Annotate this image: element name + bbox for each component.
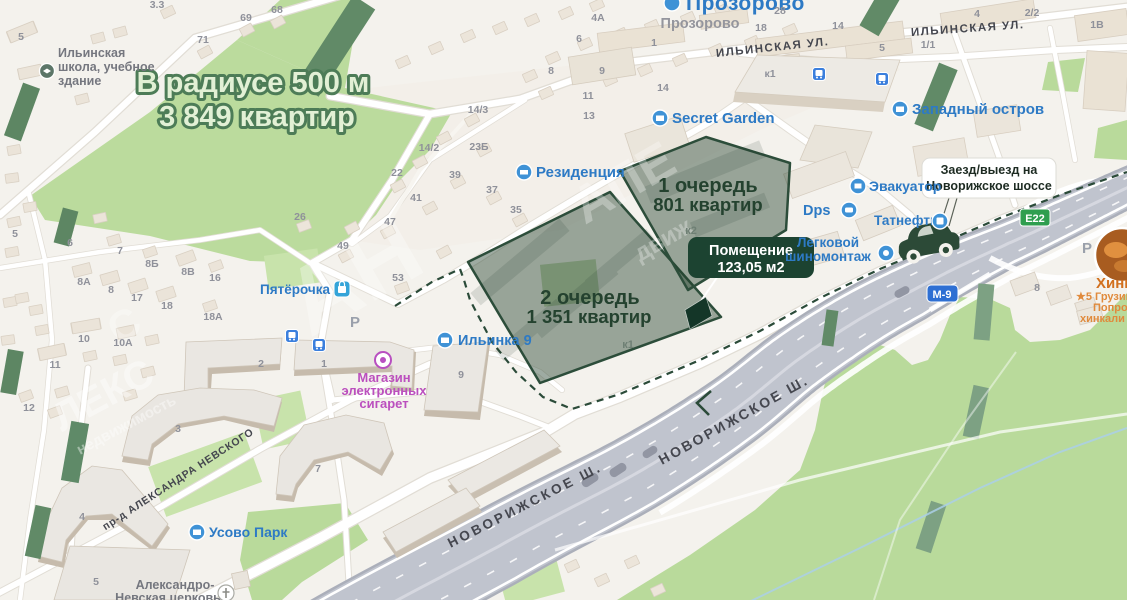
- svg-text:Dps: Dps: [803, 203, 830, 219]
- svg-text:Легковой: Легковой: [797, 235, 859, 250]
- svg-text:5: 5: [93, 576, 99, 588]
- svg-text:12: 12: [23, 402, 35, 414]
- svg-text:к2: к2: [685, 225, 697, 237]
- svg-text:11: 11: [582, 90, 593, 102]
- svg-text:26: 26: [294, 211, 306, 223]
- svg-text:68: 68: [271, 4, 283, 16]
- svg-text:5: 5: [18, 31, 24, 43]
- svg-text:9: 9: [458, 369, 464, 381]
- svg-text:Secret Garden: Secret Garden: [672, 110, 775, 127]
- svg-text:Татнефть: Татнефть: [874, 213, 938, 228]
- svg-text:6: 6: [67, 237, 73, 249]
- svg-text:53: 53: [392, 272, 404, 284]
- svg-text:9: 9: [599, 65, 605, 77]
- svg-text:Александро-: Александро-: [136, 578, 215, 592]
- svg-text:23Б: 23Б: [469, 141, 489, 153]
- svg-text:39: 39: [449, 169, 461, 181]
- svg-text:16: 16: [209, 272, 221, 284]
- svg-text:Эвакуатор: Эвакуатор: [869, 178, 941, 194]
- svg-text:хинкали и: хинкали и: [1080, 313, 1127, 325]
- svg-text:14: 14: [832, 20, 844, 32]
- svg-text:8: 8: [1034, 282, 1040, 294]
- svg-text:E22: E22: [1025, 213, 1045, 225]
- svg-text:8: 8: [548, 65, 554, 77]
- svg-text:школа, учебное: школа, учебное: [58, 60, 155, 74]
- svg-text:69: 69: [240, 12, 252, 24]
- svg-text:Заезд/выезд на: Заезд/выезд на: [941, 163, 1039, 177]
- svg-text:41: 41: [410, 192, 422, 204]
- svg-text:4: 4: [79, 511, 85, 523]
- svg-text:Прозорово: Прозорово: [686, 0, 805, 15]
- svg-text:М-9: М-9: [933, 289, 952, 301]
- svg-text:35: 35: [510, 204, 522, 216]
- svg-text:1: 1: [651, 37, 657, 49]
- svg-text:Новорижское шоссе: Новорижское шоссе: [926, 179, 1052, 193]
- svg-text:к1: к1: [764, 68, 775, 80]
- svg-text:здание: здание: [58, 74, 101, 88]
- svg-text:17: 17: [131, 292, 143, 304]
- svg-text:сигарет: сигарет: [359, 396, 408, 411]
- svg-text:47: 47: [384, 216, 396, 228]
- svg-text:123,05 м2: 123,05 м2: [717, 260, 784, 276]
- svg-text:4: 4: [974, 8, 980, 20]
- svg-text:Прозорово: Прозорово: [661, 16, 740, 32]
- svg-text:8Б: 8Б: [145, 258, 159, 270]
- svg-text:13: 13: [583, 110, 595, 122]
- svg-text:5: 5: [879, 42, 885, 54]
- svg-text:к1: к1: [622, 339, 634, 351]
- svg-text:801 квартир: 801 квартир: [653, 194, 762, 215]
- svg-text:14/3: 14/3: [468, 104, 489, 116]
- svg-text:18А: 18А: [203, 311, 223, 323]
- svg-text:Хинка: Хинка: [1096, 275, 1127, 292]
- svg-text:8А: 8А: [77, 276, 91, 288]
- svg-text:шиномонтаж: шиномонтаж: [785, 249, 871, 264]
- svg-text:49: 49: [337, 240, 349, 252]
- svg-text:14: 14: [657, 82, 669, 94]
- svg-text:4А: 4А: [591, 12, 605, 24]
- svg-text:37: 37: [486, 184, 498, 196]
- svg-text:Усово Парк: Усово Парк: [209, 524, 288, 540]
- svg-text:1: 1: [321, 358, 327, 370]
- svg-text:18: 18: [161, 300, 173, 312]
- svg-text:3.3: 3.3: [150, 0, 165, 11]
- svg-text:7: 7: [117, 245, 123, 257]
- svg-text:10А: 10А: [113, 337, 133, 349]
- svg-text:3 849 квартир: 3 849 квартир: [159, 101, 355, 133]
- svg-text:Резиденция: Резиденция: [536, 164, 625, 181]
- svg-text:Западный остров: Западный остров: [912, 101, 1044, 118]
- svg-text:Ильинская: Ильинская: [58, 46, 125, 60]
- svg-text:Ильинка 9: Ильинка 9: [458, 333, 532, 349]
- svg-text:1В: 1В: [1090, 19, 1104, 31]
- svg-text:2: 2: [258, 358, 264, 370]
- svg-text:Пятёрочка: Пятёрочка: [260, 282, 330, 297]
- svg-text:Помещение: Помещение: [709, 243, 793, 259]
- svg-text:В радиусе 500 м: В радиусе 500 м: [137, 67, 370, 99]
- svg-text:10: 10: [78, 333, 90, 345]
- svg-text:Невская церковь: Невская церковь: [115, 591, 221, 600]
- svg-text:18: 18: [755, 22, 767, 34]
- svg-text:8В: 8В: [181, 266, 195, 278]
- svg-text:14/2: 14/2: [419, 142, 440, 154]
- svg-text:5: 5: [12, 228, 18, 240]
- svg-text:Р: Р: [350, 314, 360, 331]
- svg-text:8: 8: [108, 284, 114, 296]
- svg-text:11: 11: [49, 359, 60, 371]
- svg-text:28: 28: [774, 5, 786, 17]
- svg-text:2/2: 2/2: [1025, 7, 1040, 19]
- svg-text:7: 7: [315, 463, 321, 475]
- svg-text:1/1: 1/1: [921, 39, 936, 51]
- svg-text:1 351 квартир: 1 351 квартир: [527, 306, 652, 327]
- svg-text:6: 6: [576, 33, 582, 45]
- svg-text:Р: Р: [1082, 240, 1092, 257]
- svg-text:3: 3: [175, 423, 181, 435]
- svg-text:71: 71: [197, 34, 209, 46]
- svg-text:22: 22: [391, 167, 403, 179]
